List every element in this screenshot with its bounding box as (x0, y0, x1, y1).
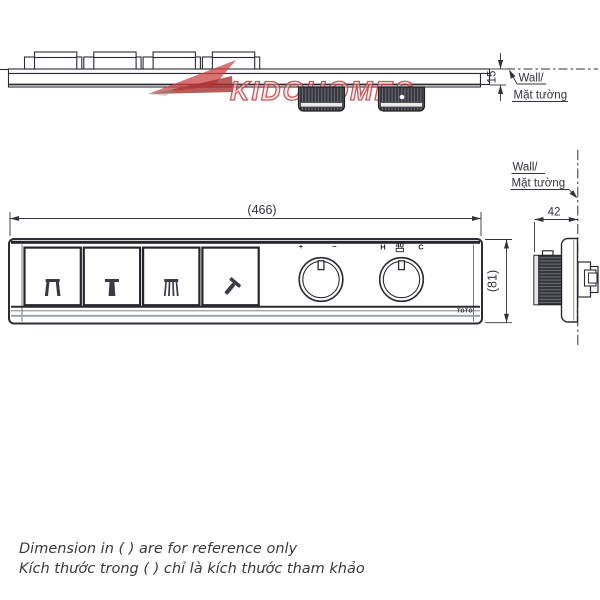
front-view: + − H 40 C TOTO (9, 239, 482, 324)
note-en: Dimension in ( ) are for reference only (19, 539, 365, 559)
brand-logo: TOTO (457, 309, 473, 315)
top-view-wall-label: Wall/ Mặt tường (509, 70, 568, 102)
arrowhead-down (498, 60, 503, 69)
wall-label-en: Wall/ (513, 162, 539, 174)
temp-cold-label: C (418, 243, 424, 252)
temp-hot-label: H (380, 243, 385, 252)
panel-top-strip (11, 241, 480, 244)
top-button-profile-1 (25, 52, 82, 69)
height-dim-label: (81) (486, 270, 500, 292)
leader-arrowhead (509, 70, 515, 79)
width-dimension-466: (466) (10, 203, 481, 236)
side-view-wall-label: Wall/ Mặt tường (511, 162, 578, 199)
knob-indicator (318, 261, 324, 270)
technical-drawing-page: KIDOHOMES 15 Wall/ Mặt tường (0, 0, 600, 600)
watermark: KIDOHOMES (148, 60, 415, 106)
depth-dim-label: 42 (548, 207, 561, 219)
arrowhead-left (10, 216, 19, 221)
temp-knob-dot (400, 95, 405, 100)
spray-button-2[interactable] (84, 248, 140, 306)
arrowhead-up (498, 85, 503, 94)
volume-knob-base-band (301, 103, 343, 108)
spray-button-3[interactable] (143, 248, 199, 306)
arrowhead-up (504, 240, 509, 249)
volume-minus-label: − (332, 242, 337, 251)
temperature-knob[interactable] (380, 258, 424, 302)
wall-label-vi: Mặt tường (514, 90, 568, 102)
spray-button-4[interactable] (202, 248, 258, 306)
top-button-profile-3 (143, 52, 200, 69)
side-knob-face (534, 255, 539, 304)
side-view: Wall/ Mặt tường 42 (511, 150, 599, 348)
arrowhead-left (535, 217, 544, 222)
top-button-profile-4 (202, 52, 259, 69)
arrowhead-down (504, 314, 509, 323)
reference-note: Dimension in ( ) are for reference only … (19, 539, 365, 579)
height-dimension-81: (81) (485, 240, 512, 323)
wall-label-en: Wall/ (519, 73, 545, 85)
volume-knob[interactable] (299, 258, 343, 302)
arrowhead-right (569, 217, 578, 222)
temp-knob-base-band (381, 103, 423, 108)
panel-top-lip (9, 69, 490, 74)
side-knob-knurled-body (539, 255, 562, 304)
spray-button-1[interactable] (25, 248, 81, 306)
knob-indicator (399, 261, 405, 270)
top-button-profile-2 (84, 52, 141, 69)
arrowhead-right (472, 216, 481, 221)
side-plate-outline (562, 239, 578, 323)
side-knob-top-tab (543, 251, 554, 256)
width-dim-label: (466) (247, 203, 276, 217)
note-vi: Kích thước trong ( ) chỉ là kích thước t… (19, 559, 365, 579)
wall-label-vi: Mặt tường (512, 178, 566, 190)
drawing-canvas: KIDOHOMES 15 Wall/ Mặt tường (0, 0, 600, 600)
volume-knob-top-profile (299, 87, 345, 111)
offset-dim-label: 15 (487, 71, 499, 84)
volume-plus-label: + (299, 242, 304, 251)
in-wall-valve-body (578, 262, 598, 297)
